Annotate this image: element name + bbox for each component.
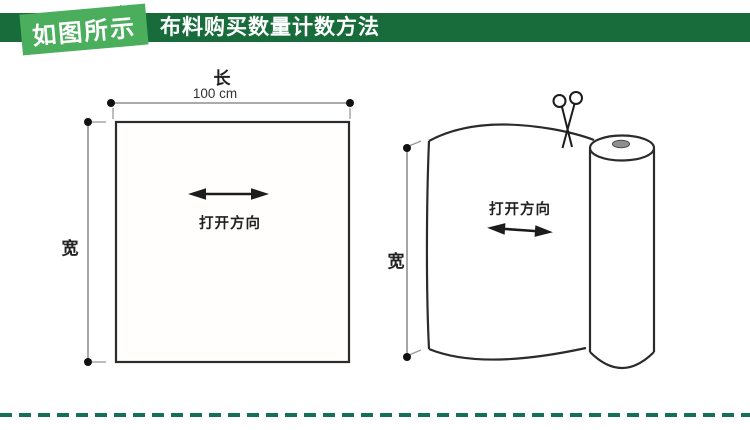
open-direction-label-left: 打开方向 <box>170 212 290 233</box>
roll-core <box>613 140 630 148</box>
dim-dot <box>403 144 411 152</box>
width-dimension-line-right <box>407 141 421 355</box>
dim-dot <box>107 99 115 107</box>
width-label-right: 宽 <box>384 247 408 272</box>
dim-dot <box>84 118 92 126</box>
diagram-canvas <box>0 0 750 430</box>
dim-dot <box>346 99 354 107</box>
dim-dot <box>403 353 411 361</box>
open-direction-label-right: 打开方向 <box>460 198 580 219</box>
open-direction-arrow-right <box>487 222 554 238</box>
fabric-roll <box>590 136 654 369</box>
scissors-icon <box>554 92 583 148</box>
fabric-square <box>116 122 349 362</box>
fabric-measure-infographic: 如图所示 布料购买数量计数方法 <box>0 0 750 430</box>
width-dimension-line-left <box>88 122 106 362</box>
width-label-left: 宽 <box>58 234 82 259</box>
length-value: 100 cm <box>180 86 250 101</box>
fabric-roll-diagram <box>403 92 654 368</box>
fabric-sheet <box>427 125 594 360</box>
dim-dot <box>84 358 92 366</box>
length-dimension-line <box>111 103 350 119</box>
